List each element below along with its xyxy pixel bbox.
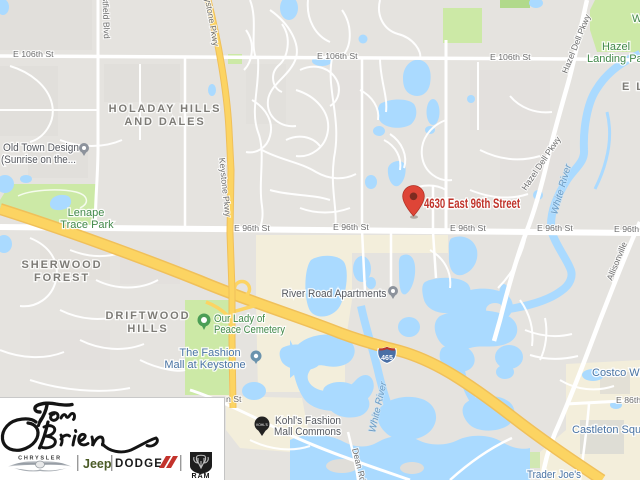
svg-text:The Fashion: The Fashion: [179, 347, 240, 359]
svg-text:Lenape: Lenape: [68, 207, 105, 219]
svg-text:E 96th St: E 96th St: [333, 222, 369, 232]
svg-text:SHERWOOD: SHERWOOD: [21, 259, 102, 271]
svg-text:465: 465: [381, 355, 393, 362]
svg-text:E 106th St: E 106th St: [490, 52, 531, 62]
svg-text:RAM: RAM: [192, 473, 211, 480]
svg-text:Mall Commons: Mall Commons: [274, 426, 341, 438]
svg-text:W: W: [632, 13, 640, 25]
svg-text:(Sunrise on the...: (Sunrise on the...: [1, 154, 76, 166]
svg-text:AND DALES: AND DALES: [124, 116, 205, 128]
svg-text:Trader Joe's: Trader Joe's: [527, 469, 581, 480]
svg-text:E 96th St: E 96th St: [614, 224, 640, 234]
svg-text:Castleton Square Mall: Castleton Square Mall: [572, 424, 640, 436]
svg-text:River Road Apartments: River Road Apartments: [282, 288, 387, 300]
svg-text:Costco Wholesale: Costco Wholesale: [592, 367, 640, 379]
svg-text:DRIFTWOOD: DRIFTWOOD: [106, 310, 191, 322]
svg-text:E 106th St: E 106th St: [317, 51, 358, 61]
svg-text:E L L: E L L: [622, 81, 640, 93]
svg-text:HOLADAY HILLS: HOLADAY HILLS: [109, 103, 222, 115]
svg-text:HILLS: HILLS: [127, 323, 168, 335]
svg-text:E 106th St: E 106th St: [13, 49, 54, 59]
svg-text:Mall at Keystone: Mall at Keystone: [164, 359, 245, 371]
svg-text:KOHL'S: KOHL'S: [256, 423, 267, 427]
svg-text:Landing Park: Landing Park: [587, 53, 640, 65]
svg-text:4630 East 96th Street: 4630 East 96th Street: [424, 195, 520, 211]
svg-text:E 96th St: E 96th St: [450, 223, 486, 233]
svg-text:E 86th St: E 86th St: [616, 395, 640, 405]
svg-text:n St: n St: [226, 394, 242, 404]
svg-text:Old Town Design: Old Town Design: [3, 142, 79, 154]
svg-text:Jeep: Jeep: [83, 457, 112, 471]
svg-text:Peace Cemetery: Peace Cemetery: [214, 324, 285, 336]
svg-text:Hazel: Hazel: [602, 41, 630, 53]
svg-text:Trace Park: Trace Park: [60, 219, 114, 231]
svg-text:DODGE: DODGE: [115, 458, 163, 470]
svg-text:Westfield Blvd: Westfield Blvd: [100, 0, 112, 39]
svg-text:FOREST: FOREST: [34, 272, 90, 284]
svg-text:E 96th St: E 96th St: [234, 223, 270, 233]
svg-text:E 96th St: E 96th St: [537, 223, 573, 233]
